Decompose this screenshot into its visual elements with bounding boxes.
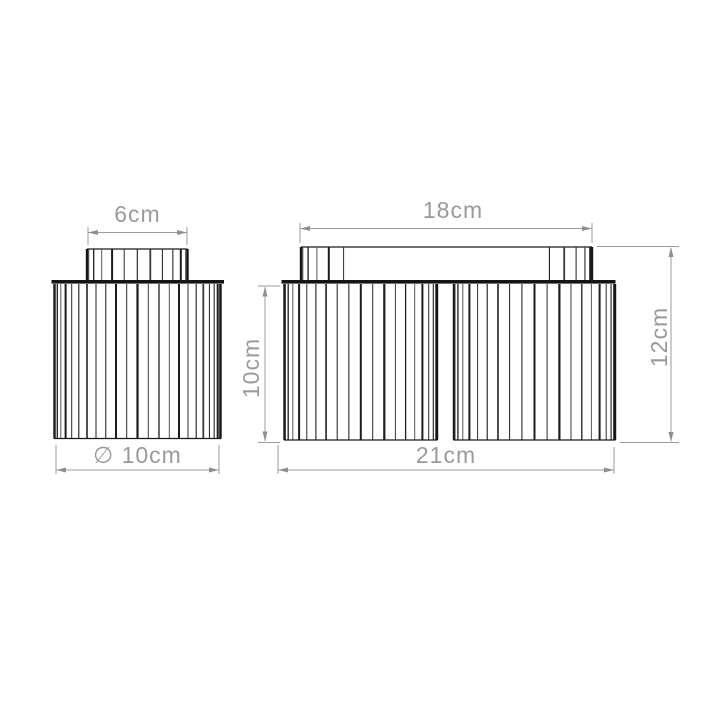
dim-label-diameter: ∅ 10cm <box>93 442 182 468</box>
canopy-ribs <box>301 247 592 280</box>
left-fixture <box>52 249 225 439</box>
dim-label-cap-width: 6cm <box>114 201 160 227</box>
dimension-drawing: 6cm ∅ 10cm 18cm 10cm <box>0 0 720 720</box>
dim-diameter: ∅ 10cm <box>56 442 219 474</box>
dim-overall-width: 21cm <box>278 442 614 474</box>
dim-label-overall-width: 21cm <box>416 442 476 468</box>
left-cap-ribs <box>87 249 188 280</box>
dim-cap-width: 6cm <box>88 201 187 245</box>
right-fixture-canopy <box>301 247 592 280</box>
left-fixture-shade <box>54 284 221 439</box>
dim-overall-height: 12cm <box>597 247 679 443</box>
left-fixture-plate <box>52 280 225 284</box>
right-shade-left-ribs <box>285 284 438 440</box>
dim-label-shade-height: 10cm <box>238 338 264 398</box>
technical-drawing-page: 6cm ∅ 10cm 18cm 10cm <box>0 0 720 720</box>
left-fixture-cap <box>87 249 188 280</box>
right-fixture <box>282 247 616 440</box>
right-fixture-shade-right <box>454 284 616 440</box>
right-fixture-plate <box>282 280 616 284</box>
right-fixture-shade-left <box>284 284 438 440</box>
left-shade-ribs <box>55 284 221 439</box>
dim-canopy-width: 18cm <box>300 197 592 243</box>
right-shade-right-ribs <box>454 284 615 440</box>
dim-shade-height: 10cm <box>238 286 280 443</box>
dim-label-canopy-width: 18cm <box>423 197 483 223</box>
dim-label-overall-height: 12cm <box>646 307 672 367</box>
